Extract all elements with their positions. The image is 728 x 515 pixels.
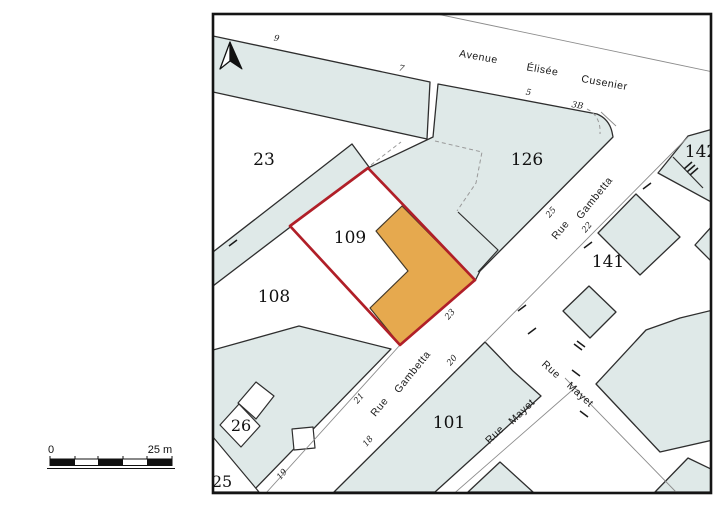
parcel-label-25: 25 — [212, 472, 232, 491]
parcel-label-126: 126 — [511, 150, 543, 170]
parcel-label-109: 109 — [334, 228, 366, 248]
parcel-label-101: 101 — [433, 413, 465, 433]
parcel-label-23: 23 — [253, 150, 275, 170]
scale-bar: 0 25 m — [47, 444, 175, 469]
scale-start-label: 0 — [48, 444, 54, 456]
map-canvas: 23 126 142 109 108 141 101 26 25 Avenue … — [0, 0, 728, 515]
parcel-label-141: 141 — [592, 252, 624, 272]
small-courtyard-square — [292, 427, 315, 450]
cadastral-map: 23 126 142 109 108 141 101 26 25 Avenue … — [0, 0, 728, 515]
scale-end-label: 25 m — [148, 444, 172, 456]
parcel-label-142: 142 — [685, 142, 717, 162]
parcel-label-108: 108 — [258, 287, 290, 307]
house-number-3b: 3B — [571, 100, 584, 112]
parcel-label-26: 26 — [231, 416, 251, 435]
